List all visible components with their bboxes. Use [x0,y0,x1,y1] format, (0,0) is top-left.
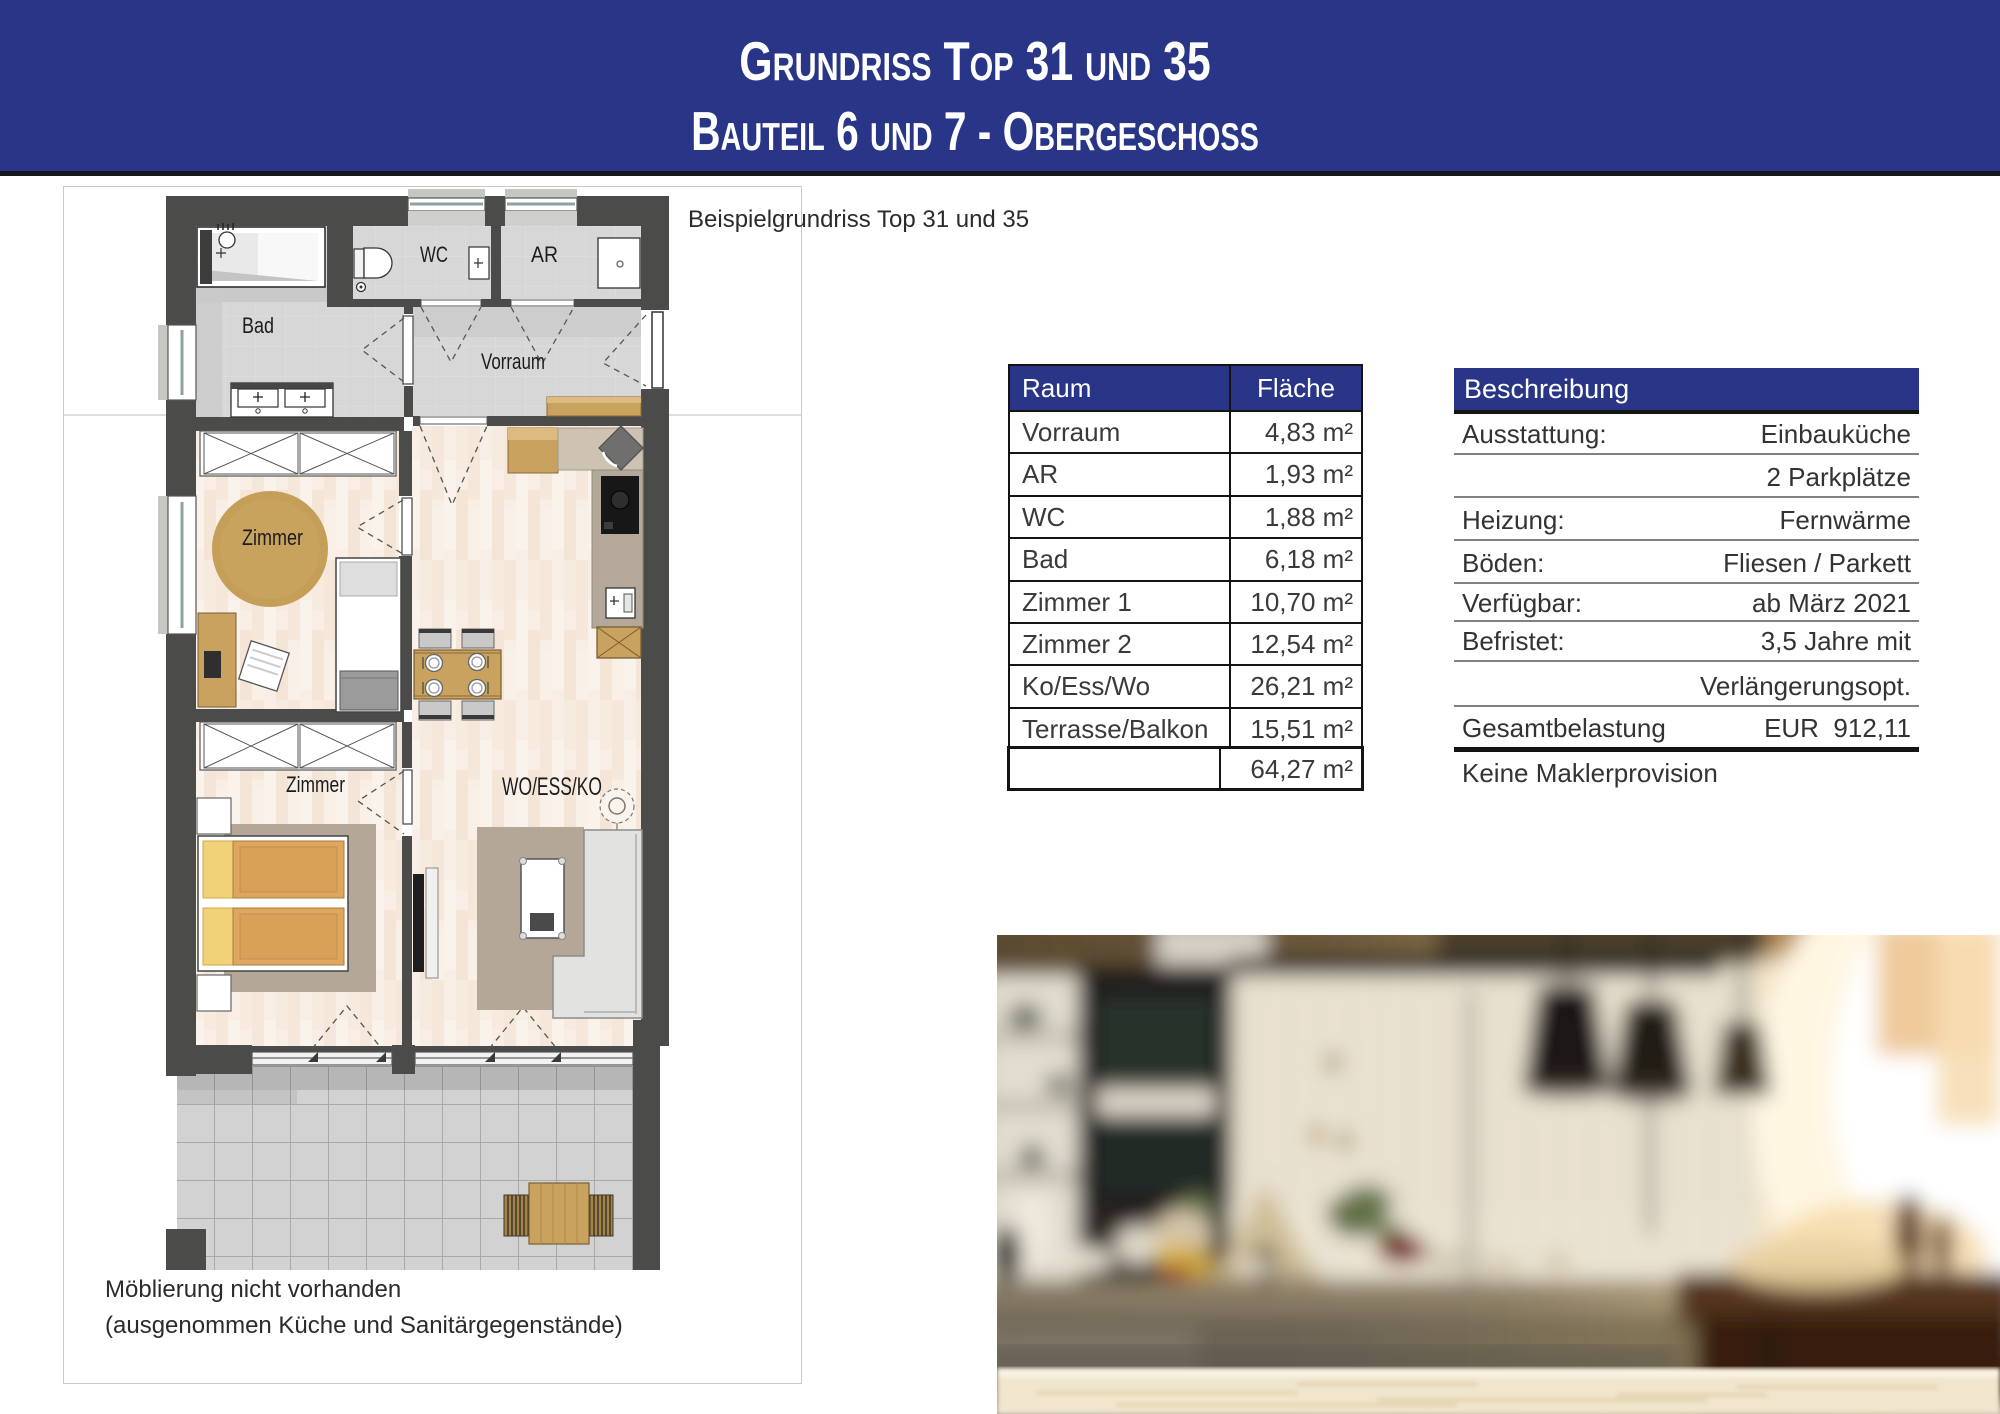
svg-text:Zimmer: Zimmer [286,772,345,797]
svg-text:WC: WC [420,242,448,267]
svg-text:Zimmer: Zimmer [242,525,303,550]
svg-text:AR: AR [531,242,558,267]
svg-text:Bad: Bad [242,313,274,338]
svg-text:Vorraum: Vorraum [481,349,545,374]
svg-text:WO/ESS/KO: WO/ESS/KO [502,773,602,801]
